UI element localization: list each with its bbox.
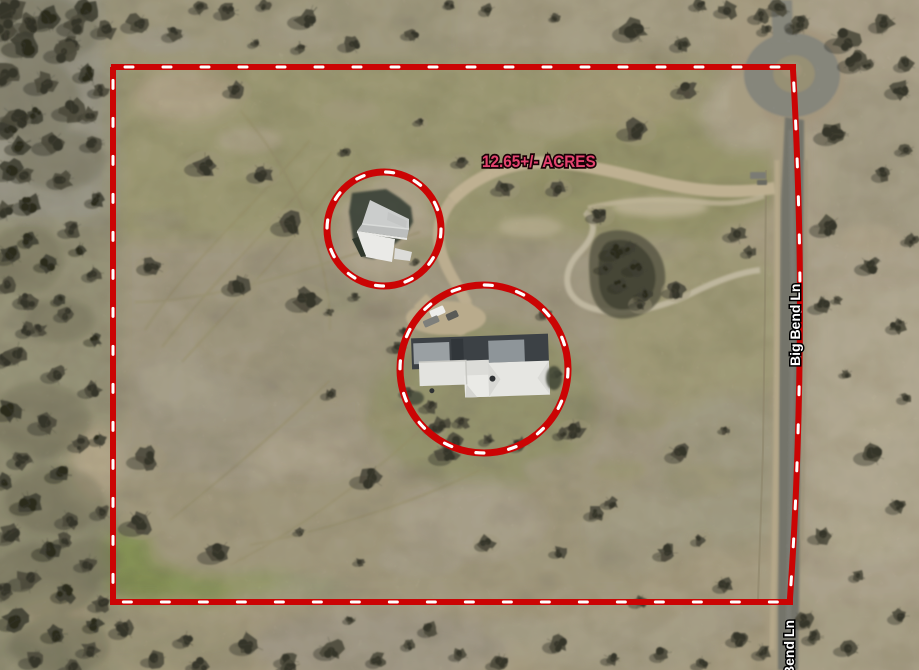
svg-text:12.65+/- ACRES: 12.65+/- ACRES [482,152,596,171]
svg-text:Bend Ln: Bend Ln [781,620,797,670]
svg-text:Big Bend Ln: Big Bend Ln [787,284,803,366]
